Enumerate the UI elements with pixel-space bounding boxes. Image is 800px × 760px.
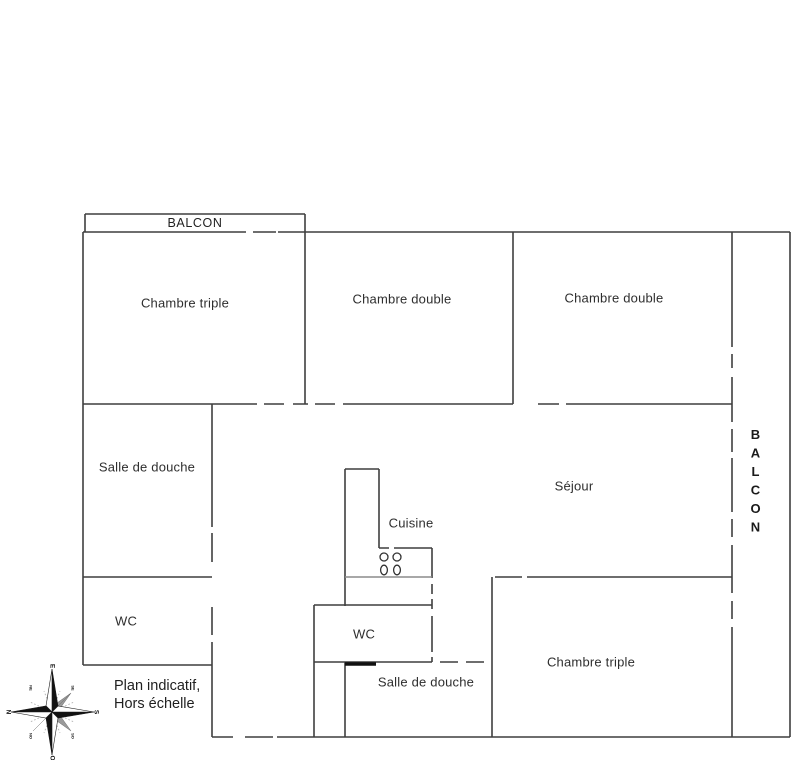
stove-burners-icon (380, 553, 401, 575)
compass-southeast-label: SE (71, 685, 76, 691)
room-label-sejour: Séjour (555, 479, 594, 494)
room-label-wc-middle: WC (353, 627, 375, 642)
compass-east-label: E (49, 664, 56, 669)
room-label-chambre-triple-bottom: Chambre triple (547, 655, 635, 670)
compass-rose-icon: E S O N NE SE SO NO (6, 662, 100, 760)
compass-northwest-label: NO (29, 733, 34, 739)
room-label-chambre-triple-top: Chambre triple (141, 296, 229, 311)
room-label-cuisine: Cuisine (389, 516, 434, 531)
floorplan-page: BALCON BALCON Chambre triple Chambre dou… (0, 0, 800, 760)
room-label-wc-left: WC (115, 614, 137, 629)
compass-southwest-label: SO (71, 733, 76, 739)
plan-note-line2: Hors échelle (114, 696, 200, 714)
balcony-top-label: BALCON (85, 216, 305, 230)
room-label-chambre-double-middle: Chambre double (353, 292, 452, 307)
room-label-chambre-double-right: Chambre double (565, 291, 664, 306)
compass-northeast-label: NE (29, 685, 34, 691)
floorplan-walls (0, 0, 800, 760)
plan-note-line1: Plan indicatif, (114, 678, 200, 696)
room-label-salle-de-douche-bottom: Salle de douche (378, 675, 474, 690)
plan-note: Plan indicatif, Hors échelle (114, 678, 200, 713)
door-openings-dashed (212, 232, 732, 737)
compass-west-label: O (49, 755, 56, 760)
balcony-right-label: BALCON (748, 427, 763, 538)
compass-south-label: S (93, 710, 100, 715)
compass-north-label: N (6, 710, 12, 715)
room-label-salle-de-douche-left: Salle de douche (99, 460, 195, 475)
